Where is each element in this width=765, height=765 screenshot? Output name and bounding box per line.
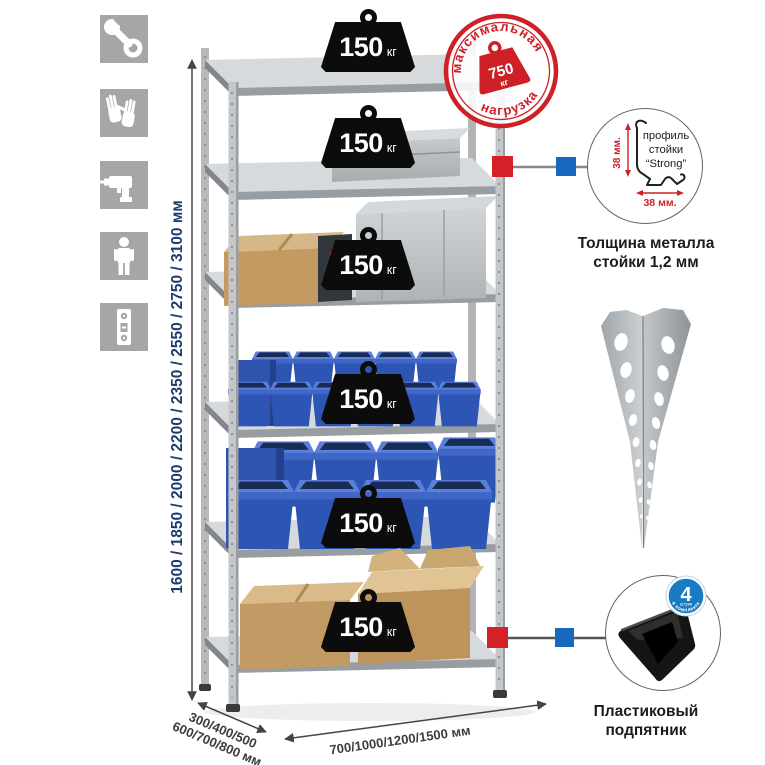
profile-label-3: “Strong” [646,158,687,170]
shelf-load-weight: 150кг [321,361,415,425]
profile-caption: Толщина металла стойки 1,2 мм [556,234,736,272]
profile-detail-circle: 38 мм. 38 мм. профиль стойки “Strong” [587,108,703,224]
drill-icon [100,161,148,209]
level-icon [100,303,148,351]
shelf-load-weight: 150кг [321,9,415,73]
shelf-load-weight: 150кг [321,485,415,549]
foot-caption-line2: подпятник [605,722,686,739]
gloves-icon [100,89,148,137]
profile-caption-line1: Толщина металла [578,235,715,252]
weight-value: 150 [339,384,383,415]
callout-marker-blue-top [556,157,576,176]
callout-marker-red-top [492,156,513,177]
weight-value: 150 [339,612,383,643]
profile-dim-vertical: 38 мм. [612,137,623,169]
weight-value: 150 [339,32,383,63]
callout-marker-blue-bottom [555,628,574,647]
weight-value: 150 [339,508,383,539]
weight-unit: кг [387,45,397,59]
wrench-icon [100,15,148,63]
weight-unit: кг [387,397,397,411]
foot-caption-line1: Пластиковый [594,703,699,720]
included-count-badge: 4 штуки в комплекте [665,575,707,617]
max-load-stamp: максимальная нагрузка 750 кг [438,8,564,134]
shelf-load-weight: 150кг [321,589,415,653]
callout-marker-red-bottom [487,627,508,648]
weight-unit: кг [387,141,397,155]
height-options-label: 1600 / 1850 / 2000 / 2200 / 2350 / 2550 … [169,200,187,594]
angle-post-image [588,300,713,552]
weight-unit: кг [387,263,397,277]
weight-value: 150 [339,128,383,159]
product-infographic: 1600 / 1850 / 2000 / 2200 / 2350 / 2550 … [0,0,765,765]
profile-dim-horizontal: 38 мм. [643,197,676,209]
weight-unit: кг [387,521,397,535]
profile-label-1: профиль [643,130,689,142]
profile-caption-line2: стойки 1,2 мм [593,254,698,271]
person-icon [100,232,148,280]
shelf-load-weight: 150кг [321,227,415,291]
profile-label-2: стойки [649,144,683,156]
shelf-load-weight: 150кг [321,105,415,169]
weight-value: 150 [339,250,383,281]
badge-unit: штуки [680,602,693,607]
weight-unit: кг [387,625,397,639]
foot-caption: Пластиковый подпятник [556,702,736,740]
